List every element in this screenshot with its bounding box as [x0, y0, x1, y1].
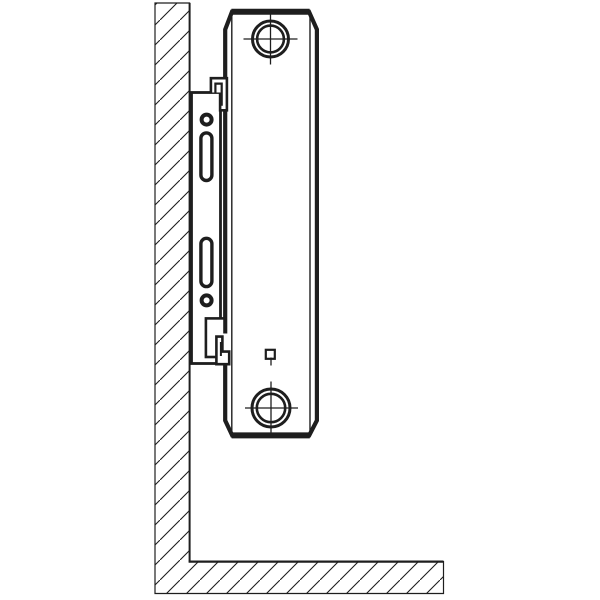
radiator-mounting-diagram [0, 0, 600, 600]
bracket-upper-slot [201, 133, 212, 181]
radiator-outline [225, 12, 317, 436]
radiator-panel [225, 12, 317, 436]
diagram-canvas [0, 0, 600, 600]
drain-square-marker [266, 350, 275, 359]
bracket-lower-fixing-hole [202, 295, 212, 305]
bracket-upper-fixing-hole [202, 115, 212, 125]
bracket-lower-slot [201, 238, 212, 286]
